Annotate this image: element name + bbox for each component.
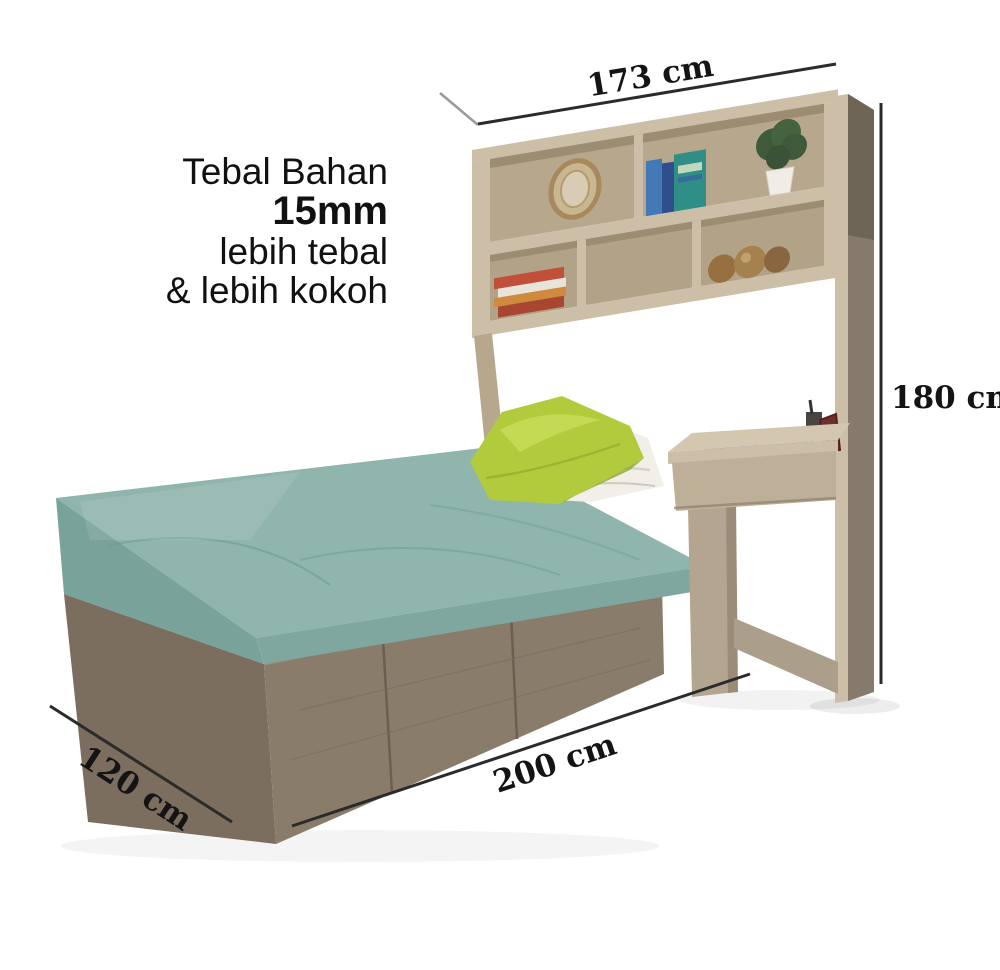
hutch-right-stile	[824, 101, 838, 279]
material-thickness-value: 15mm	[0, 191, 388, 232]
desk-stretcher	[734, 618, 838, 694]
desk-leg-shade	[726, 500, 738, 693]
shelf-unit	[472, 89, 838, 338]
hutch-left-stile	[472, 159, 490, 338]
hutch-row1-divider	[634, 134, 643, 218]
product-image: Tebal Bahan 15mm lebih tebal & lebih kok…	[0, 0, 1000, 970]
desk	[668, 400, 850, 697]
material-note-line: Tebal Bahan	[0, 152, 388, 191]
material-note-line: lebih tebal	[0, 232, 388, 271]
side-panel	[835, 94, 874, 703]
pen	[810, 400, 812, 414]
material-note-line: & lebih kokoh	[0, 271, 388, 310]
hutch-row2-divider	[692, 220, 701, 287]
backdrop-edge	[440, 93, 478, 125]
material-note: Tebal Bahan 15mm lebih tebal & lebih kok…	[0, 152, 388, 310]
furniture-photo: 173 cm 180 cm 200 cm 120 cm	[0, 0, 1000, 970]
side-panel-side-shade	[848, 94, 874, 240]
hutch-row2-divider	[577, 239, 586, 306]
dim-label-right-height: 180 cm	[891, 380, 1000, 416]
